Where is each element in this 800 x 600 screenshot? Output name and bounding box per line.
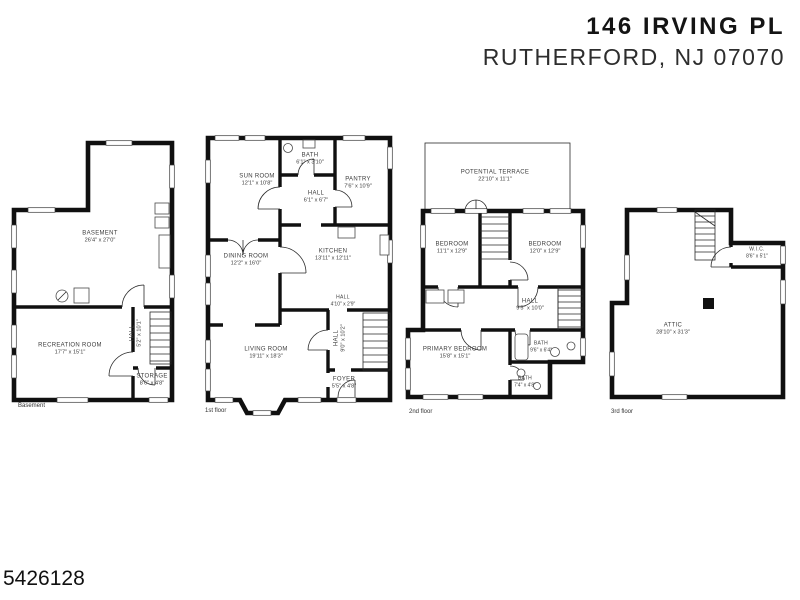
1st-floor-windows xyxy=(206,136,393,416)
2nd-floor-stairs xyxy=(480,217,583,330)
1st-floor-doors xyxy=(228,159,355,397)
1st-floor-plan-drawing xyxy=(203,135,395,420)
floor-plan-3rd: ATTIC 28'10" x 31'3" W.I.C. 8'6" x 5'1" xyxy=(607,200,799,405)
floor-plan-2nd: POTENTIAL TERRACE 22'10" x 11'1" BEDROOM… xyxy=(403,140,599,405)
caption-2nd-floor: 2nd floor xyxy=(409,409,432,415)
3rd-floor-plan-drawing xyxy=(607,200,799,405)
3rd-floor-doors xyxy=(711,247,731,267)
address-line: 146 IRVING PL xyxy=(483,13,785,41)
address-header: 146 IRVING PL RUTHERFORD, NJ 07070 xyxy=(483,13,785,71)
city-state-zip: RUTHERFORD, NJ 07070 xyxy=(483,44,785,71)
caption-basement: Basement xyxy=(18,403,45,409)
2nd-floor-plan-drawing xyxy=(403,140,599,405)
caption-3rd-floor: 3rd floor xyxy=(611,409,633,415)
3rd-floor-stairs xyxy=(695,210,715,260)
floor-plan-1st: SUN ROOM 12'1" x 10'8" BATH 6'1" x 3'10"… xyxy=(203,135,395,420)
floor-plan-sheet: 146 IRVING PL RUTHERFORD, NJ 07070 xyxy=(0,0,800,600)
1st-floor-stairs xyxy=(363,313,390,370)
basement-stairs xyxy=(150,312,171,364)
chimney xyxy=(703,298,714,309)
basement-plan-drawing xyxy=(10,140,176,406)
floor-plan-basement: BASEMENT 26'4" x 27'0" RECREATION ROOM 1… xyxy=(10,140,176,406)
potential-terrace-outline xyxy=(425,143,570,210)
listing-id: 5426128 xyxy=(3,567,85,591)
caption-1st-floor: 1st floor xyxy=(205,408,226,414)
3rd-floor-windows xyxy=(610,208,786,400)
basement-fixtures xyxy=(56,203,170,303)
